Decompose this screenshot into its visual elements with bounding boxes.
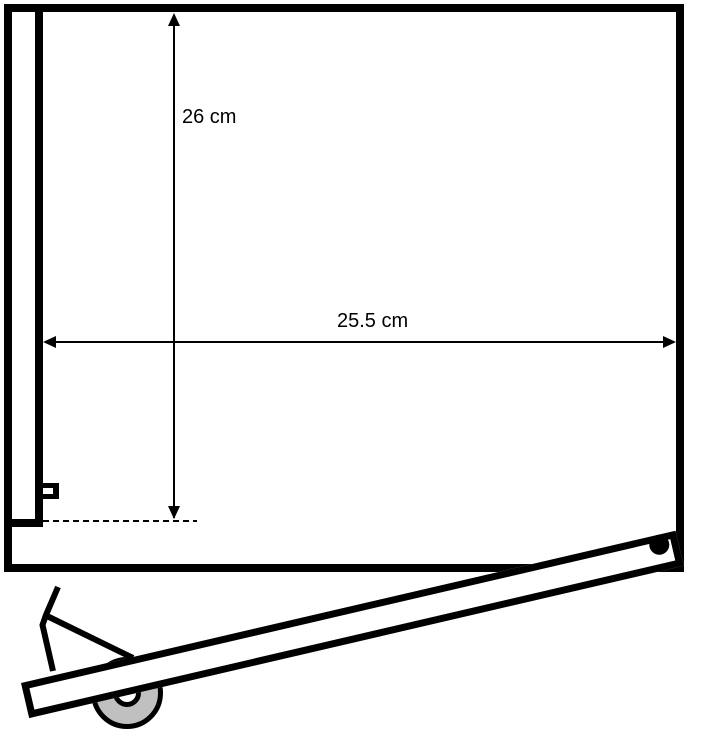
handle-bar	[43, 587, 59, 671]
handle-lines	[0, 0, 704, 740]
diagram-canvas: 26 cm 25.5 cm	[0, 0, 704, 740]
handle-brace	[47, 616, 133, 658]
